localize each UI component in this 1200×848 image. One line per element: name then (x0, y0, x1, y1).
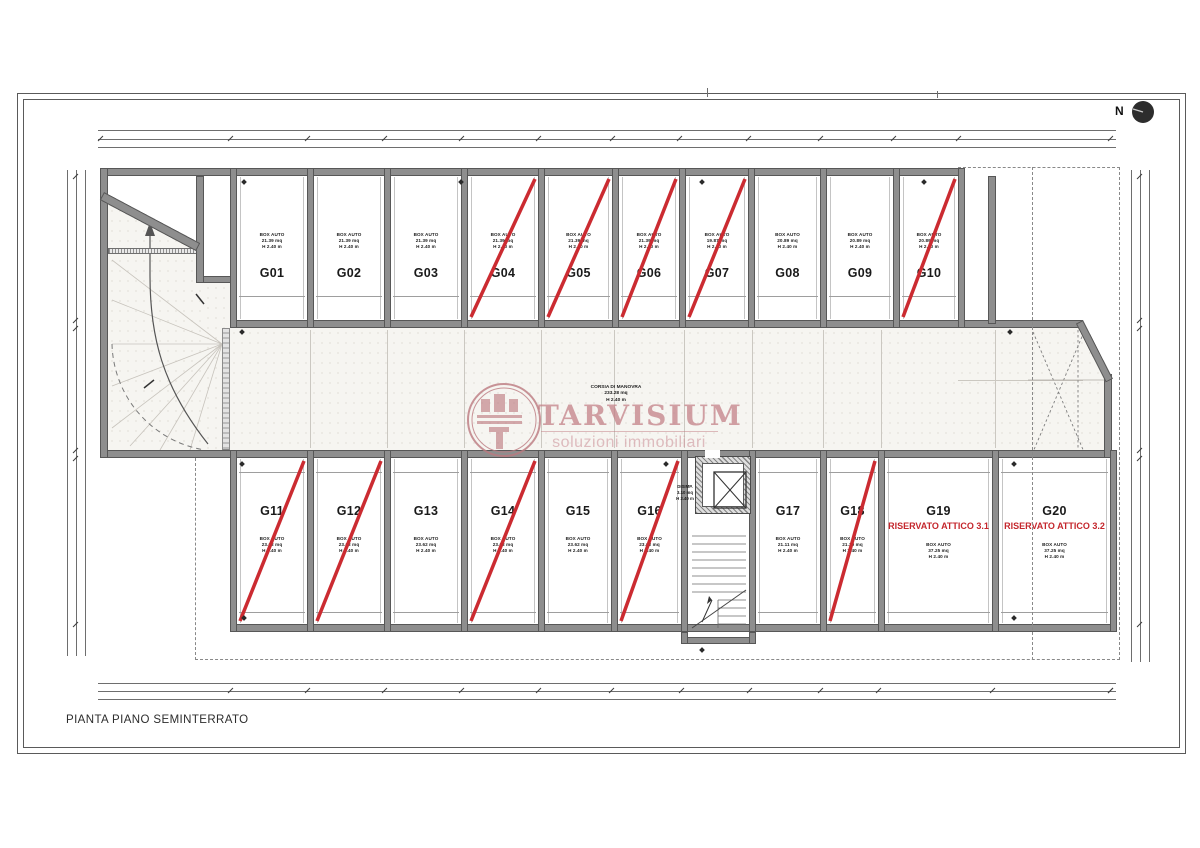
garage-spec: BOX AUTO 23.62 mq H 2.40 m (545, 536, 611, 555)
garage-id: G13 (391, 504, 461, 518)
stairwell-wall-right-ext (749, 632, 756, 644)
dimension-line-left (85, 170, 86, 656)
sold-marker-line (237, 458, 307, 624)
garage-box-G07: BOX AUTO 19.87 mq H 2.40 m G07 (686, 176, 748, 320)
garage-box-G08: BOX AUTO 20.89 mq H 2.40 m G08 (755, 176, 820, 320)
sold-marker-line (619, 176, 679, 320)
garage-box-G06: BOX AUTO 21.39 mq H 2.40 m G06 (619, 176, 679, 320)
garage-door-line (393, 296, 459, 297)
wall-stub-top-right (988, 176, 996, 324)
garage-spec: BOX AUTO 20.89 mq H 2.40 m (827, 232, 893, 251)
partition-wall-bottom (230, 450, 237, 632)
sold-marker-line (686, 176, 748, 320)
garage-door-line (758, 612, 818, 613)
garage-id: G03 (391, 266, 461, 280)
dimension-line-bottom (98, 683, 1116, 684)
watermark-tagline: soluzioni immobiliari (538, 434, 720, 452)
partition-wall-bottom (878, 450, 885, 632)
garage-height: H 2.40 m (756, 548, 820, 554)
garage-height: H 2.40 m (827, 244, 893, 250)
garage-box-G02: BOX AUTO 21.39 mq H 2.40 m G02 (314, 176, 384, 320)
partition-wall-top (230, 168, 237, 328)
garage-height: H 2.40 m (545, 548, 611, 554)
elevator-x-icon (713, 471, 747, 509)
partition-wall-bottom (611, 450, 618, 632)
projection-line (823, 330, 824, 448)
dimension-line-right (1131, 170, 1132, 662)
dimension-line-right (1140, 170, 1141, 662)
sold-marker-line (468, 176, 538, 320)
garage-box-G14: BOX AUTO 23.62 mq H 2.40 m G14 (468, 458, 538, 624)
partition-wall-bottom (307, 450, 314, 632)
garage-box-G03: BOX AUTO 21.39 mq H 2.40 m G03 (391, 176, 461, 320)
partition-wall-bottom (1110, 450, 1117, 632)
garage-id: G19 (885, 504, 992, 518)
garage-door-line (547, 612, 609, 613)
garage-id: G15 (545, 504, 611, 518)
sold-marker-line (900, 176, 958, 320)
garage-door-line (887, 472, 990, 473)
garage-door-tracks (1002, 459, 1107, 623)
garage-box-G11: BOX AUTO 23.62 mq H 2.40 m G11 (237, 458, 307, 624)
partition-wall-top (384, 168, 391, 328)
partition-wall-top (820, 168, 827, 328)
partition-wall-bottom (681, 450, 688, 632)
garage-height: H 2.40 m (237, 244, 307, 250)
garage-door-line (393, 612, 459, 613)
garage-spec: BOX AUTO 37.25 mq H 2.40 m (999, 542, 1110, 561)
garage-box-G12: BOX AUTO 23.62 mq H 2.40 m G12 (314, 458, 384, 624)
garage-spec: BOX AUTO 21.11 mq H 2.40 m (756, 536, 820, 555)
garage-id: G20 (999, 504, 1110, 518)
lot-line-top (958, 167, 1120, 168)
stairwell-wall-bottom (681, 637, 756, 644)
partition-wall-top (893, 168, 900, 328)
garage-height: H 2.40 m (885, 554, 992, 560)
partition-wall-bottom (992, 450, 999, 632)
partition-wall-top (307, 168, 314, 328)
garage-height: H 2.40 m (755, 244, 820, 250)
projection-line (881, 330, 882, 448)
garage-id: G09 (827, 266, 893, 280)
garage-box-G20: BOX AUTO 37.25 mq H 2.40 m G20 RISERVATO… (999, 458, 1110, 624)
garage-box-G19: BOX AUTO 37.25 mq H 2.40 m G19 RISERVATO… (885, 458, 992, 624)
exterior-wall-left (100, 168, 108, 458)
ramp-notch-wall-v (196, 176, 204, 283)
partition-wall-top (748, 168, 755, 328)
garage-door-line (1001, 612, 1108, 613)
sold-marker-line (827, 458, 878, 624)
garage-box-G15: BOX AUTO 23.62 mq H 2.40 m G15 (545, 458, 611, 624)
garage-spec: BOX AUTO 21.39 mq H 2.40 m (314, 232, 384, 251)
hallway-height: H 2.40 m (662, 496, 708, 502)
corridor-entry-gate (222, 328, 230, 450)
hallway-label: DISIMP. 3.10 mq H 2.40 m (662, 484, 708, 501)
garage-door-line (829, 296, 891, 297)
partition-wall-top (612, 168, 619, 328)
exterior-wall-bottom (230, 624, 1117, 632)
garage-box-G13: BOX AUTO 23.62 mq H 2.40 m G13 (391, 458, 461, 624)
garage-box-G16: BOX AUTO 23.62 mq H 2.40 m G16 (618, 458, 681, 624)
partition-wall-bottom (384, 450, 391, 632)
partition-wall-bottom (538, 450, 545, 632)
garage-box-G05: BOX AUTO 21.39 mq H 2.40 m G05 (545, 176, 612, 320)
partition-wall-bottom (461, 450, 468, 632)
sold-marker-line (314, 458, 384, 624)
projection-line (310, 330, 311, 448)
watermark-brand: TARVISIUM (538, 399, 720, 432)
watermark-underline (541, 431, 718, 432)
corridor-wall-top (230, 320, 1083, 328)
garage-door-line (757, 296, 818, 297)
garage-spec: BOX AUTO 21.39 mq H 2.40 m (237, 232, 307, 251)
north-label: N (1115, 104, 1124, 118)
ramp-turning-area (100, 176, 232, 458)
partition-wall-bottom (820, 450, 827, 632)
ramp-grille (108, 248, 197, 254)
dimension-line-top (98, 130, 1116, 131)
garage-reserved-label: RISERVATO ATTICO 3.1 (888, 521, 989, 531)
garage-id: G02 (314, 266, 384, 280)
floor-plan-sheet: N PIANTA PIANO SEMINTERRATO CORSIA DI MA… (0, 0, 1200, 848)
dimension-line-left (76, 170, 77, 656)
garage-door-line (1001, 472, 1108, 473)
sold-marker-line (545, 176, 612, 320)
border-tick (937, 91, 938, 98)
dimension-line-bottom (98, 699, 1116, 700)
plan-title: PIANTA PIANO SEMINTERRATO (66, 714, 249, 726)
garage-door-tracks (888, 459, 989, 623)
partition-wall-top (538, 168, 545, 328)
garage-box-G18: BOX AUTO 21.30 mq H 2.40 m G18 (827, 458, 878, 624)
garage-height: H 2.40 m (999, 554, 1110, 560)
dimension-line-top (98, 147, 1116, 148)
garage-id: G01 (237, 266, 307, 280)
garage-door-line (547, 472, 609, 473)
garage-box-G01: BOX AUTO 21.39 mq H 2.40 m G01 (237, 176, 307, 320)
lot-line-internal (1032, 167, 1033, 660)
sold-marker-line (468, 458, 538, 624)
partition-wall-top (958, 168, 965, 328)
north-compass-icon (1130, 99, 1156, 125)
garage-spec: BOX AUTO 20.89 mq H 2.40 m (755, 232, 820, 251)
projection-line (995, 330, 996, 448)
dimension-line-top (98, 139, 1116, 140)
partition-wall-top (679, 168, 686, 328)
dimension-line-bottom (98, 691, 1116, 692)
garage-id: G08 (755, 266, 820, 280)
lot-line-right (1119, 167, 1120, 660)
tarvisium-logo-icon (465, 381, 543, 459)
projection-line (752, 330, 753, 448)
garage-spec: BOX AUTO 37.25 mq H 2.40 m (885, 542, 992, 561)
garage-door-line (239, 296, 305, 297)
garage-door-line (316, 296, 382, 297)
garage-box-G09: BOX AUTO 20.89 mq H 2.40 m G09 (827, 176, 893, 320)
lot-line-left (195, 458, 196, 660)
corridor-wall-right (1104, 374, 1112, 458)
stairwell-wall-left-ext (681, 632, 688, 644)
garage-box-G04: BOX AUTO 21.39 mq H 2.40 m G04 (468, 176, 538, 320)
garage-door-line (758, 472, 818, 473)
garage-spec: BOX AUTO 21.39 mq H 2.40 m (391, 232, 461, 251)
dimension-line-right (1149, 170, 1150, 662)
garage-spec: BOX AUTO 23.62 mq H 2.40 m (391, 536, 461, 555)
projection-line (387, 330, 388, 448)
garage-height: H 2.40 m (314, 244, 384, 250)
garage-height: H 2.40 m (391, 244, 461, 250)
garage-door-line (887, 612, 990, 613)
garage-id: G17 (756, 504, 820, 518)
garage-box-G10: BOX AUTO 20.89 mq H 2.40 m G10 (900, 176, 958, 320)
garage-height: H 2.40 m (391, 548, 461, 554)
partition-wall-top (461, 168, 468, 328)
dimension-line-left (67, 170, 68, 656)
lot-line-bottom (195, 659, 1120, 660)
garage-box-G17: BOX AUTO 21.11 mq H 2.40 m G17 (756, 458, 820, 624)
garage-reserved-label: RISERVATO ATTICO 3.2 (1004, 521, 1105, 531)
border-tick (707, 88, 708, 97)
staircase (688, 516, 750, 638)
sold-marker-line (618, 458, 681, 624)
garage-door-line (393, 472, 459, 473)
elevator-cab (702, 463, 744, 507)
